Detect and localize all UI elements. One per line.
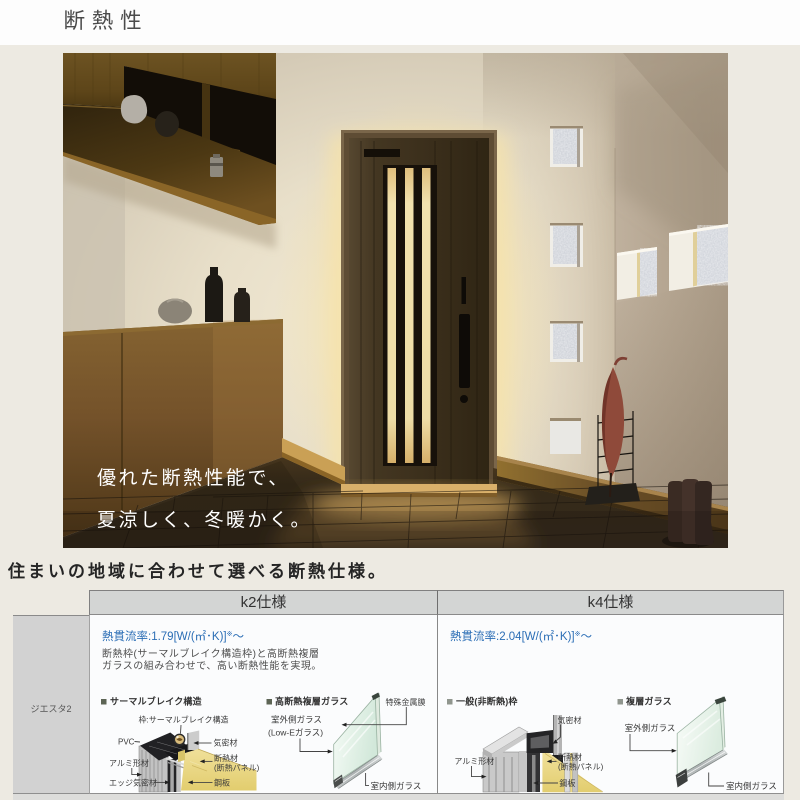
svg-text:断熱材: 断熱材	[558, 752, 582, 762]
svg-text:気密材: 気密材	[558, 715, 582, 725]
svg-text:高断熱複層ガラス: 高断熱複層ガラス	[275, 696, 348, 707]
svg-text:(断熱パネル): (断熱パネル)	[214, 763, 260, 773]
svg-text:(Low-Eガラス): (Low-Eガラス)	[268, 728, 323, 738]
svg-text:室外側ガラス: 室外側ガラス	[625, 723, 676, 733]
svg-text:一般(非断熱)枠: 一般(非断熱)枠	[456, 696, 518, 707]
svg-text:PVC: PVC	[118, 738, 135, 747]
svg-text:優れた断熱性能で、: 優れた断熱性能で、	[97, 467, 290, 489]
svg-text:(断熱パネル): (断熱パネル)	[558, 762, 604, 772]
svg-text:複層ガラス: 複層ガラス	[625, 696, 672, 707]
svg-text:鋼板: 鋼板	[559, 778, 575, 788]
svg-text:断熱材: 断熱材	[214, 753, 238, 763]
svg-text:エッジ気密材: エッジ気密材	[109, 778, 157, 788]
svg-text:アルミ形材: アルミ形材	[454, 756, 494, 766]
svg-text:特殊金属膜: 特殊金属膜	[386, 697, 426, 707]
svg-text:アルミ形材: アルミ形材	[109, 758, 149, 768]
svg-text:室内側ガラス: 室内側ガラス	[371, 781, 422, 791]
svg-text:気密材: 気密材	[214, 738, 238, 748]
svg-text:室内側ガラス: 室内側ガラス	[726, 781, 777, 791]
svg-text:サーマルブレイク構造: サーマルブレイク構造	[110, 696, 203, 707]
svg-text:鋼板: 鋼板	[214, 778, 230, 788]
svg-text:室外側ガラス: 室外側ガラス	[271, 715, 322, 725]
svg-text:枠:サーマルブレイク構造: 枠:サーマルブレイク構造	[139, 715, 229, 725]
svg-text:夏涼しく、冬暖かく。: 夏涼しく、冬暖かく。	[97, 509, 312, 531]
